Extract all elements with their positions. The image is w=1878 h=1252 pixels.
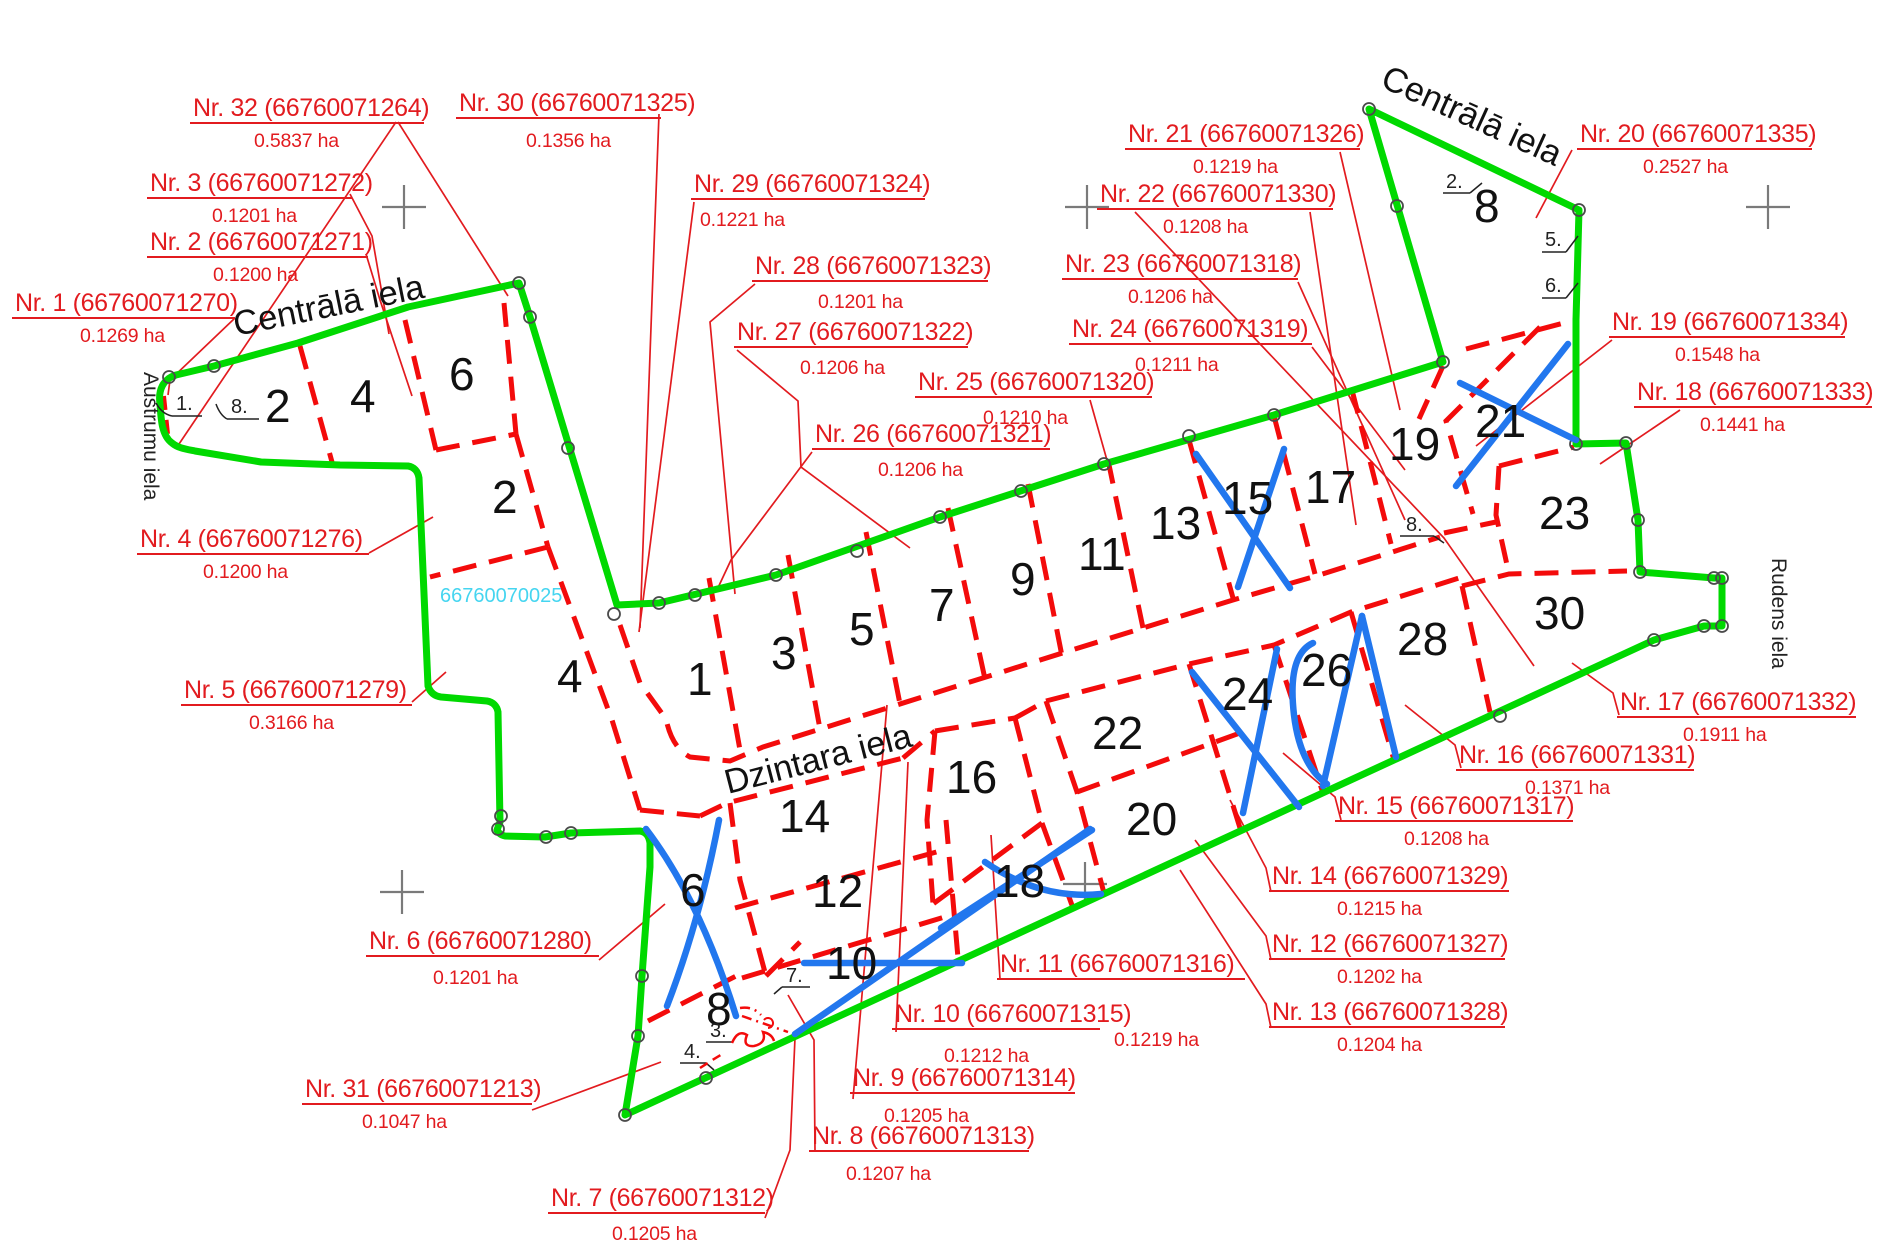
svg-text:0.1548 ha: 0.1548 ha [1675,344,1760,366]
svg-text:4.: 4. [684,1041,701,1063]
svg-text:Nr. 19 (66760071334): Nr. 19 (66760071334) [1612,308,1848,336]
svg-text:14: 14 [779,790,830,842]
svg-text:0.1206 ha: 0.1206 ha [1128,286,1213,308]
svg-text:0.1221 ha: 0.1221 ha [700,209,785,231]
svg-text:0.1206 ha: 0.1206 ha [800,357,885,379]
svg-text:7: 7 [929,579,955,631]
svg-text:10: 10 [826,937,877,989]
svg-text:Nr. 3 (66760071272): Nr. 3 (66760071272) [150,169,373,197]
svg-text:0.1208 ha: 0.1208 ha [1163,216,1248,238]
svg-text:Nr. 27 (66760071322): Nr. 27 (66760071322) [737,318,973,346]
svg-text:1.: 1. [176,393,193,415]
svg-text:19: 19 [1389,418,1440,470]
svg-text:21: 21 [1475,395,1526,447]
svg-text:Nr. 9 (66760071314): Nr. 9 (66760071314) [853,1064,1076,1092]
svg-text:0.1212 ha: 0.1212 ha [944,1045,1029,1067]
svg-text:0.1219 ha: 0.1219 ha [1114,1029,1199,1051]
svg-text:4: 4 [350,370,376,422]
svg-text:30: 30 [1534,587,1585,639]
svg-text:26: 26 [1301,644,1352,696]
svg-text:Nr. 10 (66760071315): Nr. 10 (66760071315) [895,1000,1131,1028]
svg-text:16: 16 [946,751,997,803]
svg-text:1: 1 [687,653,713,705]
svg-text:Nr. 15 (66760071317): Nr. 15 (66760071317) [1338,792,1574,820]
svg-text:Nr. 25 (66760071320): Nr. 25 (66760071320) [918,368,1154,396]
svg-text:28: 28 [1397,613,1448,665]
svg-text:0.1356 ha: 0.1356 ha [526,130,611,152]
svg-text:Nr. 2 (66760071271): Nr. 2 (66760071271) [150,228,373,256]
svg-text:Nr. 12 (66760071327): Nr. 12 (66760071327) [1272,930,1508,958]
svg-text:Nr. 1 (66760071270): Nr. 1 (66760071270) [15,289,238,317]
svg-text:5.: 5. [1545,229,1562,251]
svg-text:Nr. 18 (66760071333): Nr. 18 (66760071333) [1637,378,1873,406]
svg-text:Rudens iela: Rudens iela [1767,558,1790,669]
svg-text:0.1269 ha: 0.1269 ha [80,325,165,347]
svg-text:0.1202 ha: 0.1202 ha [1337,966,1422,988]
svg-text:12: 12 [812,865,863,917]
svg-text:5: 5 [849,603,875,655]
svg-text:0.1207 ha: 0.1207 ha [846,1163,931,1185]
svg-text:Nr. 17 (66760071332): Nr. 17 (66760071332) [1620,688,1856,716]
svg-text:0.1206 ha: 0.1206 ha [878,459,963,481]
svg-text:0.1211 ha: 0.1211 ha [1135,354,1219,376]
svg-text:66760070025: 66760070025 [440,585,562,607]
svg-text:17: 17 [1305,461,1356,513]
svg-text:0.1201 ha: 0.1201 ha [818,291,903,313]
svg-text:Nr. 23 (66760071318): Nr. 23 (66760071318) [1065,250,1301,278]
svg-text:Nr. 14 (66760071329): Nr. 14 (66760071329) [1272,862,1508,890]
svg-text:2: 2 [265,380,291,432]
svg-text:15: 15 [1222,472,1273,524]
svg-text:Nr. 13 (66760071328): Nr. 13 (66760071328) [1272,998,1508,1026]
svg-text:Nr. 20 (66760071335): Nr. 20 (66760071335) [1580,120,1816,148]
svg-text:0.5837 ha: 0.5837 ha [254,130,339,152]
svg-text:0.1047 ha: 0.1047 ha [362,1111,447,1133]
svg-text:Nr. 30 (66760071325): Nr. 30 (66760071325) [459,89,695,117]
svg-text:23: 23 [1539,487,1590,539]
svg-text:0.1201 ha: 0.1201 ha [212,205,297,227]
svg-text:Nr. 32 (66760071264): Nr. 32 (66760071264) [193,94,429,122]
svg-text:Nr. 5 (66760071279): Nr. 5 (66760071279) [184,676,407,704]
svg-text:Nr. 31 (66760071213): Nr. 31 (66760071213) [305,1075,541,1103]
svg-text:20: 20 [1126,793,1177,845]
svg-text:6.: 6. [1545,275,1562,297]
svg-text:8: 8 [1474,180,1500,232]
svg-text:0.3166 ha: 0.3166 ha [249,712,334,734]
svg-text:3: 3 [771,627,797,679]
svg-text:0.1911 ha: 0.1911 ha [1683,724,1767,746]
svg-text:Nr. 28 (66760071323): Nr. 28 (66760071323) [755,252,991,280]
svg-text:6: 6 [680,864,706,916]
svg-text:Nr. 7 (66760071312): Nr. 7 (66760071312) [551,1184,774,1212]
svg-text:Nr. 22 (66760071330): Nr. 22 (66760071330) [1100,180,1336,208]
svg-text:Nr. 21 (66760071326): Nr. 21 (66760071326) [1128,120,1364,148]
svg-text:9: 9 [1010,553,1036,605]
svg-text:0.1200 ha: 0.1200 ha [203,561,288,583]
svg-text:4: 4 [557,650,583,702]
svg-text:Nr. 6 (66760071280): Nr. 6 (66760071280) [369,927,592,955]
svg-text:Nr. 4 (66760071276): Nr. 4 (66760071276) [140,525,363,553]
svg-text:24: 24 [1222,668,1273,720]
svg-text:0.1201 ha: 0.1201 ha [433,967,518,989]
svg-text:13: 13 [1150,497,1201,549]
svg-text:22: 22 [1092,707,1143,759]
svg-text:6: 6 [449,348,475,400]
svg-text:7.: 7. [786,965,803,987]
svg-text:0.1204 ha: 0.1204 ha [1337,1034,1422,1056]
svg-text:2.: 2. [1446,171,1463,193]
svg-text:8.: 8. [231,396,248,418]
svg-text:3.: 3. [710,1020,727,1042]
svg-text:0.2527 ha: 0.2527 ha [1643,156,1728,178]
svg-text:11: 11 [1078,528,1126,580]
svg-text:Nr. 24 (66760071319): Nr. 24 (66760071319) [1072,315,1308,343]
svg-text:Nr. 11 (66760071316): Nr. 11 (66760071316) [1000,950,1234,978]
svg-text:0.1441 ha: 0.1441 ha [1700,414,1785,436]
svg-text:0.1205 ha: 0.1205 ha [612,1223,697,1245]
svg-text:0.1215 ha: 0.1215 ha [1337,898,1422,920]
svg-text:0.1208 ha: 0.1208 ha [1404,828,1489,850]
svg-text:0.1219 ha: 0.1219 ha [1193,156,1278,178]
svg-text:0.1205 ha: 0.1205 ha [884,1105,969,1127]
svg-text:Nr. 29 (66760071324): Nr. 29 (66760071324) [694,170,930,198]
svg-text:0.1210 ha: 0.1210 ha [983,407,1068,429]
svg-text:2: 2 [492,471,518,523]
svg-text:Austrumu iela: Austrumu iela [139,372,162,501]
svg-text:8.: 8. [1406,514,1423,536]
svg-text:18: 18 [994,855,1045,907]
svg-text:Nr. 16 (66760071331): Nr. 16 (66760071331) [1459,741,1695,769]
svg-text:0.1200 ha: 0.1200 ha [213,264,298,286]
